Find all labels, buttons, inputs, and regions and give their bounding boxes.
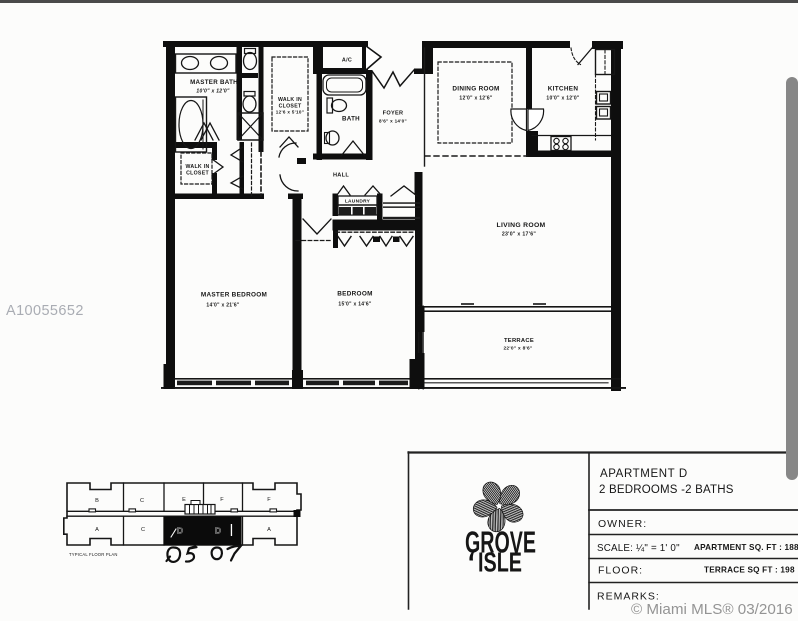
svg-text:TERRACE: TERRACE	[504, 338, 534, 344]
svg-text:F: F	[267, 497, 271, 503]
svg-text:D: D	[177, 526, 183, 536]
svg-text:OWNER:: OWNER:	[598, 518, 647, 530]
svg-text:BATH: BATH	[342, 116, 360, 123]
svg-text:12'0" x 12'6": 12'0" x 12'6"	[459, 96, 493, 102]
svg-text:14'0" x 21'6": 14'0" x 21'6"	[206, 303, 240, 309]
svg-text:LAUNDRY: LAUNDRY	[345, 199, 371, 205]
svg-text:15'0" x 14'6": 15'0" x 14'6"	[338, 302, 372, 308]
svg-text:LIVING ROOM: LIVING ROOM	[497, 222, 546, 229]
svg-text:E: E	[182, 497, 186, 503]
svg-text:C: C	[140, 498, 144, 504]
svg-text:A: A	[267, 527, 271, 533]
svg-text:B: B	[95, 498, 99, 504]
svg-text:ISLE: ISLE	[478, 547, 522, 578]
svg-text:12'6 x 5'10": 12'6 x 5'10"	[276, 110, 304, 115]
svg-text:SCALE: ¼" = 1' 0": SCALE: ¼" = 1' 0"	[597, 543, 680, 554]
svg-text:TERRACE SQ FT : 198: TERRACE SQ FT : 198	[704, 566, 795, 575]
svg-text:10'0" x 12'0": 10'0" x 12'0"	[196, 89, 230, 95]
svg-text:KITCHEN: KITCHEN	[548, 86, 579, 93]
svg-text:F: F	[220, 497, 224, 503]
svg-text:MASTER BATH: MASTER BATH	[190, 79, 238, 86]
svg-text:APARTMENT D: APARTMENT D	[600, 468, 688, 480]
svg-text:2 BEDROOMS -2 BATHS: 2 BEDROOMS -2 BATHS	[599, 484, 734, 496]
svg-text:TYPICAL FLOOR PLAN: TYPICAL FLOOR PLAN	[69, 552, 118, 557]
svg-text:WALK IN: WALK IN	[278, 97, 302, 103]
svg-text:22'0" x 8'6": 22'0" x 8'6"	[503, 346, 532, 352]
svg-text:C: C	[141, 527, 145, 533]
svg-text:FOYER: FOYER	[383, 111, 404, 117]
svg-text:A: A	[95, 527, 99, 533]
svg-text:MASTER BEDROOM: MASTER BEDROOM	[201, 292, 267, 299]
svg-text:8'6" x 14'0": 8'6" x 14'0"	[379, 119, 407, 124]
svg-text:WALK IN: WALK IN	[186, 164, 210, 170]
svg-text:FLOOR:: FLOOR:	[598, 565, 643, 577]
svg-text:DINING ROOM: DINING ROOM	[452, 86, 499, 93]
svg-text:HALL: HALL	[333, 173, 349, 179]
svg-text:A/C: A/C	[342, 58, 352, 64]
svg-text:D: D	[215, 526, 221, 536]
svg-text:23'0" x 17'6": 23'0" x 17'6"	[502, 232, 537, 238]
svg-text:CLOSET: CLOSET	[186, 171, 209, 177]
svg-text:APARTMENT SQ. FT : 1882: APARTMENT SQ. FT : 1882	[694, 543, 798, 552]
svg-text:BEDROOM: BEDROOM	[337, 291, 372, 298]
svg-text:10'0" x 12'0": 10'0" x 12'0"	[546, 96, 580, 102]
